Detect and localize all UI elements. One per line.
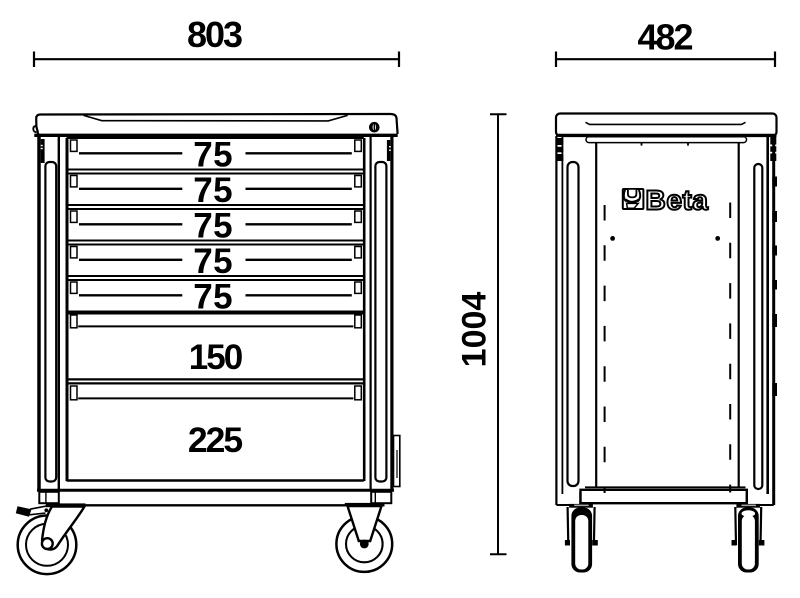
svg-text:75: 75: [193, 277, 233, 316]
svg-text:803: 803: [187, 14, 242, 55]
svg-text:225: 225: [188, 420, 242, 460]
svg-text:Beta: Beta: [646, 184, 709, 215]
svg-text:75: 75: [193, 242, 233, 281]
svg-text:482: 482: [637, 17, 692, 58]
svg-text:75: 75: [193, 171, 233, 210]
svg-text:1004: 1004: [456, 292, 494, 368]
svg-text:75: 75: [193, 135, 233, 174]
svg-text:150: 150: [189, 338, 243, 377]
svg-text:75: 75: [193, 206, 233, 245]
